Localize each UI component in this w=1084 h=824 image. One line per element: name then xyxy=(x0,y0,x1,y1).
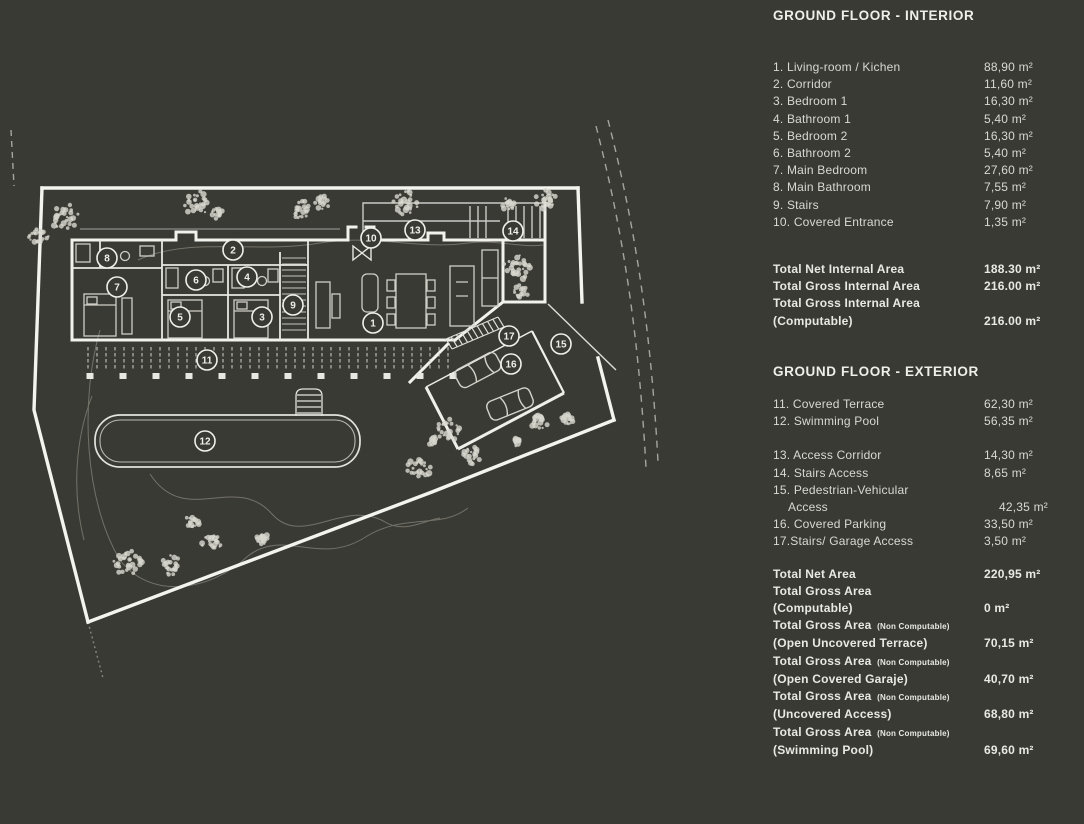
tree-icon xyxy=(199,534,222,549)
area-row: 8. Main Bathroom 7,55 m² xyxy=(773,179,1073,196)
terrace-hatch xyxy=(87,347,457,379)
area-row: 14. Stairs Access 8,65 m² xyxy=(773,465,1073,482)
tree-icon xyxy=(293,199,310,219)
svg-text:17: 17 xyxy=(503,332,515,343)
room-number-bubble: 17 xyxy=(499,326,519,346)
svg-text:1: 1 xyxy=(370,319,376,330)
total-row: (Computable) 0 m² xyxy=(773,600,1073,617)
area-row: 9. Stairs 7,90 m² xyxy=(773,197,1073,214)
total-row: (Open Covered Garaje) 40,70 m² xyxy=(773,671,1073,688)
tree-icon xyxy=(513,283,530,299)
total-row-value: 40,70 m² xyxy=(984,671,1034,688)
total-row: Total Gross Area (Non Computable) xyxy=(773,688,1073,706)
total-row: Total Gross Internal Area xyxy=(773,295,1073,312)
tree-icon xyxy=(27,227,49,244)
exterior-items-list: 11. Covered Terrace 62,30 m² 12. Swimmin… xyxy=(773,396,1073,551)
svg-text:2: 2 xyxy=(230,246,236,257)
site-plan: 1234567891011121314151617 xyxy=(0,0,760,824)
total-row: (Open Uncovered Terrace) 70,15 m² xyxy=(773,635,1073,652)
room-number-bubble: 2 xyxy=(223,240,243,260)
total-row: Total Gross Internal Area 216.00 m² xyxy=(773,278,1073,295)
area-row-label: 6. Bathroom 2 xyxy=(773,145,984,162)
tree-icon xyxy=(512,436,521,447)
area-row-label: 3. Bedroom 1 xyxy=(773,93,984,110)
area-row: 17.Stairs/ Garage Access 3,50 m² xyxy=(773,533,1073,550)
tree-icon xyxy=(255,532,270,546)
tree-icon xyxy=(503,254,533,282)
total-row-value: 69,60 m² xyxy=(984,742,1034,759)
total-row-value xyxy=(984,583,988,600)
total-row-label: Total Net Internal Area xyxy=(773,261,984,278)
area-row: 16. Covered Parking 33,50 m² xyxy=(773,516,1073,533)
svg-text:4: 4 xyxy=(244,273,250,284)
total-row-label: Total Gross Internal Area xyxy=(773,278,984,295)
room-number-bubble: 5 xyxy=(170,307,190,327)
room-number-bubble: 11 xyxy=(197,350,217,370)
tree-icon xyxy=(405,457,432,478)
total-row-value xyxy=(984,653,988,671)
area-row: 10. Covered Entrance 1,35 m² xyxy=(773,214,1073,231)
tree-icon xyxy=(161,554,180,577)
tree-icon xyxy=(534,188,558,212)
svg-text:7: 7 xyxy=(114,283,120,294)
tree-icon xyxy=(427,435,438,447)
svg-text:15: 15 xyxy=(555,340,567,351)
room-number-bubble: 6 xyxy=(186,270,206,290)
area-schedule-panel: GROUND FLOOR - INTERIOR 1. Living-room /… xyxy=(773,8,1073,759)
tree-icon xyxy=(461,445,482,466)
total-row-value: 68,80 m² xyxy=(984,706,1034,723)
svg-text:3: 3 xyxy=(259,313,265,324)
svg-text:14: 14 xyxy=(507,227,519,238)
stairs-treads xyxy=(282,258,306,330)
area-row-value: 33,50 m² xyxy=(984,516,1033,533)
area-row: 4. Bathroom 1 5,40 m² xyxy=(773,111,1073,128)
total-row-value: 0 m² xyxy=(984,600,1009,617)
room-number-bubble: 12 xyxy=(195,431,215,451)
total-row: (Uncovered Access) 68,80 m² xyxy=(773,706,1073,723)
area-row-value: 5,40 m² xyxy=(984,145,1026,162)
area-row: 6. Bathroom 2 5,40 m² xyxy=(773,145,1073,162)
total-row-value: 216.00 m² xyxy=(984,278,1041,295)
area-row-label: 13. Access Corridor xyxy=(773,447,984,464)
total-row-value: 70,15 m² xyxy=(984,635,1034,652)
area-row-label: 10. Covered Entrance xyxy=(773,214,984,231)
total-row-label: (Computable) xyxy=(773,600,984,617)
area-row-value: 62,30 m² xyxy=(984,396,1033,413)
svg-text:16: 16 xyxy=(505,360,517,371)
area-row: 15. Pedestrian-Vehicular xyxy=(773,482,1073,499)
tree-icon xyxy=(210,207,225,221)
tree-icon xyxy=(183,189,210,214)
room-number-bubble: 4 xyxy=(237,267,257,287)
road-dashes xyxy=(11,120,658,678)
svg-text:9: 9 xyxy=(290,301,296,312)
area-row-value: 5,40 m² xyxy=(984,111,1026,128)
total-row-label: Total Gross Area (Non Computable) xyxy=(773,653,984,671)
area-row-value: 27,60 m² xyxy=(984,162,1033,179)
area-row: 7. Main Bedroom 27,60 m² xyxy=(773,162,1073,179)
area-row-value: 7,55 m² xyxy=(984,179,1026,196)
total-row-label: Total Net Area xyxy=(773,566,984,583)
area-row-value: 88,90 m² xyxy=(984,59,1033,76)
area-row-label: 2. Corridor xyxy=(773,76,984,93)
room-number-bubble: 14 xyxy=(503,221,523,241)
total-row-label: Total Gross Area xyxy=(773,583,984,600)
room-number-bubble: 7 xyxy=(107,277,127,297)
area-row: 5. Bedroom 2 16,30 m² xyxy=(773,128,1073,145)
area-row-value: 3,50 m² xyxy=(984,533,1026,550)
room-number-bubble: 15 xyxy=(551,334,571,354)
area-row-label: 12. Swimming Pool xyxy=(773,413,984,430)
swimming-pool xyxy=(95,389,360,467)
total-row: Total Net Area 220,95 m² xyxy=(773,566,1073,583)
area-row: 3. Bedroom 1 16,30 m² xyxy=(773,93,1073,110)
garage-stairs-hatch xyxy=(446,317,504,349)
area-row-label: 1. Living-room / Kichen xyxy=(773,59,984,76)
area-row-label: 15. Pedestrian-Vehicular xyxy=(773,482,984,499)
total-row-label: (Swimming Pool) xyxy=(773,742,984,759)
area-row-value: 56,35 m² xyxy=(984,413,1033,430)
area-row-label: 8. Main Bathroom xyxy=(773,179,984,196)
area-row: 13. Access Corridor 14,30 m² xyxy=(773,447,1073,464)
total-row-label: (Open Covered Garaje) xyxy=(773,671,984,688)
interior-items-list: 1. Living-room / Kichen 88,90 m² 2. Corr… xyxy=(773,59,1073,231)
tree-icon xyxy=(51,203,79,230)
total-row-label: (Open Uncovered Terrace) xyxy=(773,635,984,652)
room-number-bubble: 9 xyxy=(283,295,303,315)
total-row: (Computable) 216.00 m² xyxy=(773,313,1073,330)
total-row-value: 188.30 m² xyxy=(984,261,1041,278)
car-icon xyxy=(453,350,503,389)
tree-icon xyxy=(313,194,330,211)
area-row-label: 14. Stairs Access xyxy=(773,465,984,482)
total-row-value: 220,95 m² xyxy=(984,566,1041,583)
total-row-value xyxy=(984,688,988,706)
total-row: Total Gross Area xyxy=(773,583,1073,600)
tree-icon xyxy=(529,413,549,430)
total-row: Total Gross Area (Non Computable) xyxy=(773,724,1073,742)
tree-icon xyxy=(559,412,575,426)
pool-steps xyxy=(296,389,322,416)
area-row-label: 11. Covered Terrace xyxy=(773,396,984,413)
total-row: Total Gross Area (Non Computable) xyxy=(773,617,1073,635)
exterior-totals: Total Net Area 220,95 m² Total Gross Are… xyxy=(773,566,1073,759)
area-row-value xyxy=(984,430,988,447)
trees xyxy=(27,188,575,577)
svg-text:6: 6 xyxy=(193,276,199,287)
room-number-bubble: 3 xyxy=(252,307,272,327)
total-row-label: Total Gross Area (Non Computable) xyxy=(773,617,984,635)
area-row-value xyxy=(984,482,988,499)
total-row-value xyxy=(984,724,988,742)
area-row: 12. Swimming Pool 56,35 m² xyxy=(773,413,1073,430)
total-row-label: Total Gross Internal Area xyxy=(773,295,984,312)
area-row-label: 16. Covered Parking xyxy=(773,516,984,533)
svg-text:13: 13 xyxy=(409,226,421,237)
room-number-bubble: 16 xyxy=(501,354,521,374)
area-row-value: 11,60 m² xyxy=(984,76,1032,93)
total-row-label: Total Gross Area (Non Computable) xyxy=(773,688,984,706)
room-number-bubble: 10 xyxy=(361,228,381,248)
area-row-label xyxy=(773,430,984,447)
interior-totals: Total Net Internal Area 188.30 m² Total … xyxy=(773,261,1073,330)
room-number-bubble: 8 xyxy=(97,248,117,268)
car-icon xyxy=(485,386,535,422)
area-row-value: 16,30 m² xyxy=(984,128,1033,145)
svg-text:8: 8 xyxy=(104,254,110,265)
area-row-label: 9. Stairs xyxy=(773,197,984,214)
tree-icon xyxy=(436,417,462,442)
total-row-label: (Uncovered Access) xyxy=(773,706,984,723)
svg-text:12: 12 xyxy=(199,437,211,448)
total-row-label: Total Gross Area (Non Computable) xyxy=(773,724,984,742)
svg-text:5: 5 xyxy=(177,313,183,324)
access-corridor xyxy=(80,203,545,240)
room-number-bubble: 1 xyxy=(363,313,383,333)
area-row-label: 5. Bedroom 2 xyxy=(773,128,984,145)
tree-icon xyxy=(113,549,145,575)
total-row: (Swimming Pool) 69,60 m² xyxy=(773,742,1073,759)
area-row-label: 4. Bathroom 1 xyxy=(773,111,984,128)
total-row-label: (Computable) xyxy=(773,313,984,330)
room-number-bubble: 13 xyxy=(405,220,425,240)
svg-text:10: 10 xyxy=(365,234,377,245)
area-row-value: 8,65 m² xyxy=(984,465,1026,482)
area-row-label: 7. Main Bedroom xyxy=(773,162,984,179)
area-row-value: 14,30 m² xyxy=(984,447,1033,464)
area-row-label: Access xyxy=(773,499,999,516)
total-row: Total Net Internal Area 188.30 m² xyxy=(773,261,1073,278)
area-row: 1. Living-room / Kichen 88,90 m² xyxy=(773,59,1073,76)
area-row-label: 17.Stairs/ Garage Access xyxy=(773,533,984,550)
tree-icon xyxy=(500,197,516,211)
total-row-value: 216.00 m² xyxy=(984,313,1041,330)
area-row-value: 42,35 m² xyxy=(999,499,1048,516)
area-row: 11. Covered Terrace 62,30 m² xyxy=(773,396,1073,413)
total-row: Total Gross Area (Non Computable) xyxy=(773,653,1073,671)
tree-icon xyxy=(185,515,202,528)
area-row: Access 42,35 m² xyxy=(773,499,1073,516)
area-row-value: 16,30 m² xyxy=(984,93,1033,110)
exterior-section-heading: GROUND FLOOR - EXTERIOR xyxy=(773,364,1073,379)
interior-section-heading: GROUND FLOOR - INTERIOR xyxy=(773,8,1073,23)
area-row xyxy=(773,430,1073,447)
area-row-value: 1,35 m² xyxy=(984,214,1026,231)
area-row-value: 7,90 m² xyxy=(984,197,1026,214)
total-row-value xyxy=(984,617,988,635)
svg-text:11: 11 xyxy=(202,356,213,367)
total-row-value xyxy=(984,295,988,312)
area-row: 2. Corridor 11,60 m² xyxy=(773,76,1073,93)
